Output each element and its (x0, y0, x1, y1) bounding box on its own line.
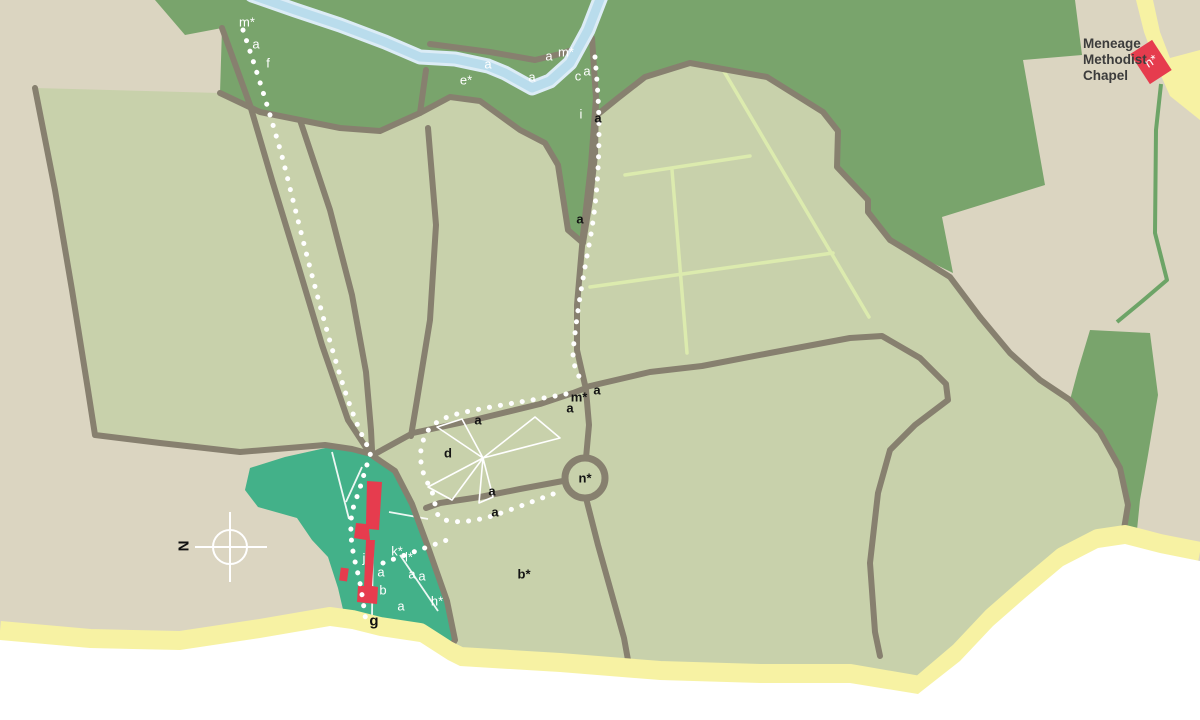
chapel-name-line: Chapel (1083, 68, 1147, 84)
map-artwork (0, 0, 1200, 720)
hedgerow (586, 390, 589, 458)
roundabout-circle (565, 458, 605, 498)
chapel-name-line: Methodist (1083, 52, 1147, 68)
chapel-name-line: Meneage (1083, 36, 1147, 52)
map-canvas: m*afe*aaam*caiaaam*aadaan*b*jk*l*aaabah*… (0, 0, 1200, 720)
chapel-name: Meneage Methodist Chapel (1083, 36, 1147, 84)
